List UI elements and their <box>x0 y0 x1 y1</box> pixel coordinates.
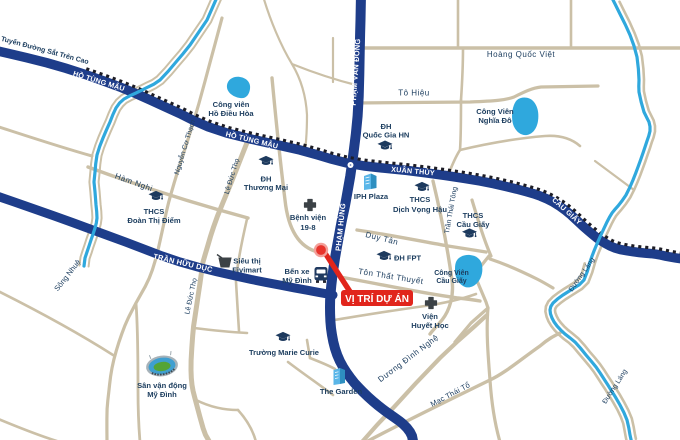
svg-text:Cầu Giấy: Cầu Giấy <box>436 276 466 285</box>
svg-text:Viện: Viện <box>422 312 438 321</box>
svg-text:Siêu thị: Siêu thị <box>233 257 260 266</box>
svg-text:THCS: THCS <box>144 207 165 216</box>
svg-text:Bệnh viện: Bệnh viện <box>290 213 327 222</box>
svg-text:Công Viên: Công Viên <box>434 270 468 277</box>
svg-text:Thương Mại: Thương Mại <box>244 183 288 192</box>
svg-text:IPH Plaza: IPH Plaza <box>354 192 389 201</box>
svg-text:THCS: THCS <box>410 195 431 204</box>
svg-text:Hoàng Quốc Việt: Hoàng Quốc Việt <box>487 50 556 59</box>
svg-text:Cầu Giấy: Cầu Giấy <box>457 220 491 229</box>
svg-text:Nghĩa Đô: Nghĩa Đô <box>478 116 512 125</box>
svg-text:VỊ TRÍ DỰ ÁN: VỊ TRÍ DỰ ÁN <box>345 292 409 305</box>
svg-text:Bến xe: Bến xe <box>285 267 310 276</box>
svg-text:THCS: THCS <box>463 211 484 220</box>
svg-text:Mỹ Đình: Mỹ Đình <box>147 390 177 399</box>
svg-text:Hồ Điều Hòa: Hồ Điều Hòa <box>208 109 254 118</box>
svg-text:Công viên: Công viên <box>213 100 250 109</box>
svg-text:Quốc Gia HN: Quốc Gia HN <box>363 131 410 140</box>
svg-text:Sân vận động: Sân vận động <box>137 381 187 390</box>
svg-text:Trường Marie Curie: Trường Marie Curie <box>249 348 319 357</box>
svg-text:Công Viên: Công Viên <box>476 107 514 116</box>
svg-text:19-8: 19-8 <box>300 223 315 232</box>
svg-text:Tô Hiệu: Tô Hiệu <box>398 89 430 98</box>
svg-text:Huyết Học: Huyết Học <box>411 321 449 330</box>
svg-text:ĐH FPT: ĐH FPT <box>394 254 422 263</box>
svg-text:Fivimart: Fivimart <box>232 266 262 275</box>
svg-text:Đoàn Thị Điểm: Đoàn Thị Điểm <box>127 216 180 225</box>
svg-text:The Garden: The Garden <box>320 387 363 396</box>
svg-text:Dịch Vọng Hậu: Dịch Vọng Hậu <box>393 205 447 214</box>
svg-text:Mỹ Đình: Mỹ Đình <box>282 276 312 285</box>
